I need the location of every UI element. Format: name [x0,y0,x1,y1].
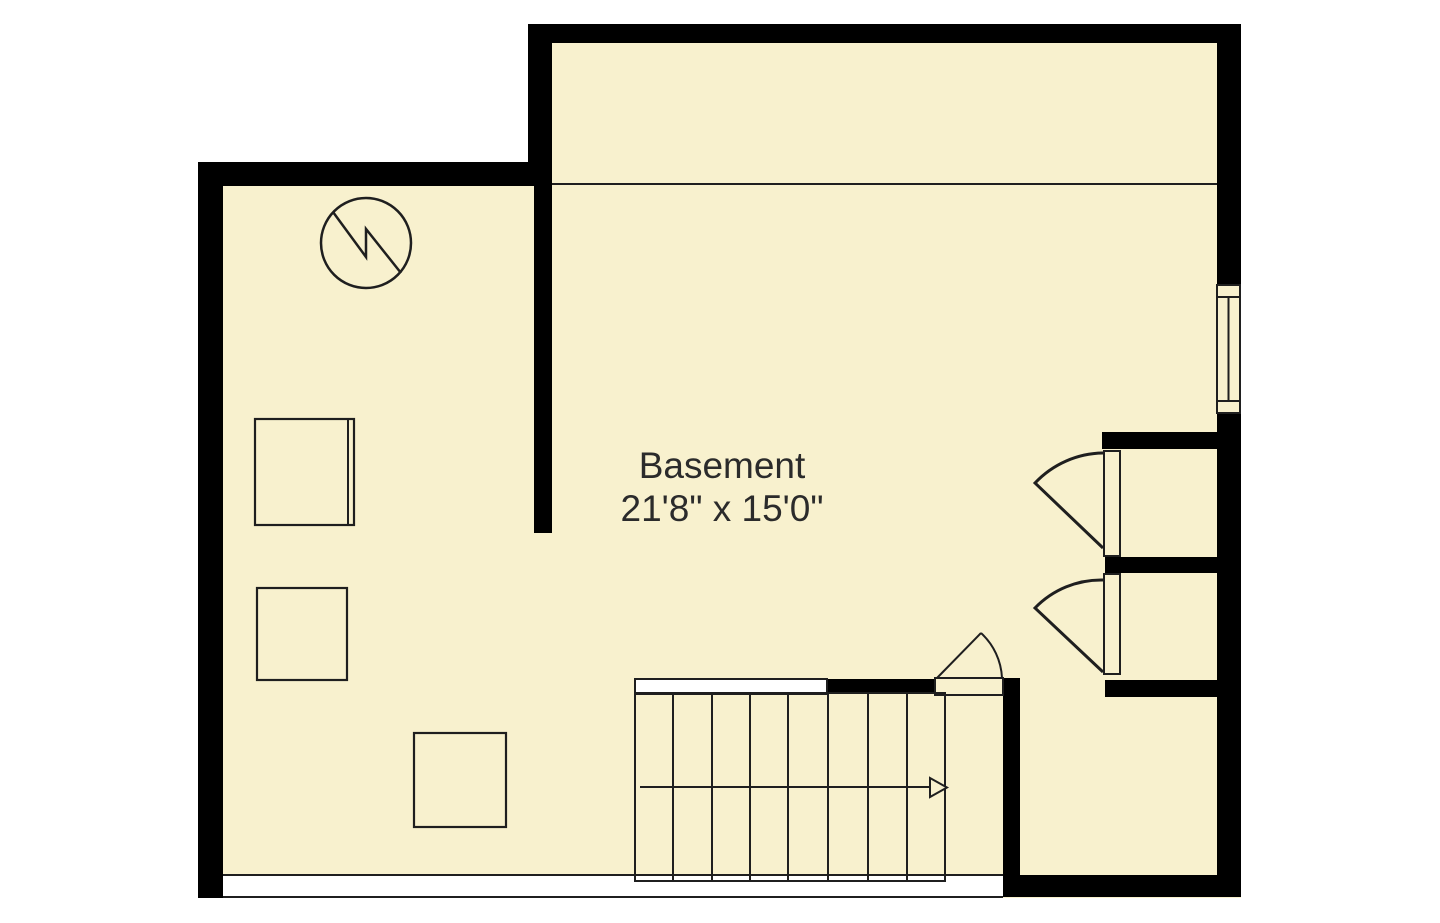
wall-top-main [528,24,1241,43]
closet-door-upper-frame [1104,451,1120,556]
wall-closet-top [1102,432,1241,449]
bottom-open-wall-band [223,874,1003,898]
wall-stair-landing [827,679,935,694]
floor-plan-canvas: Basement 21'8" x 15'0" [0,0,1440,923]
wall-closet-divider [1105,557,1217,573]
room-name-label: Basement [522,444,922,487]
wall-bottomright-room-left [1003,678,1020,897]
wall-top-left-section [198,162,552,186]
wall-bottom-right [1003,875,1241,897]
wall-left [198,162,223,898]
stair-railing [635,679,827,694]
room-dimensions-label: 21'8" x 15'0" [522,487,922,530]
room-label-block: Basement 21'8" x 15'0" [522,444,922,530]
closet-door-lower-frame [1104,574,1120,674]
wall-right [1217,24,1241,897]
wall-closet-bottom [1105,680,1241,697]
window [1217,285,1240,413]
wall-divider-upper [528,24,552,186]
floor-upper-area [528,24,1241,184]
